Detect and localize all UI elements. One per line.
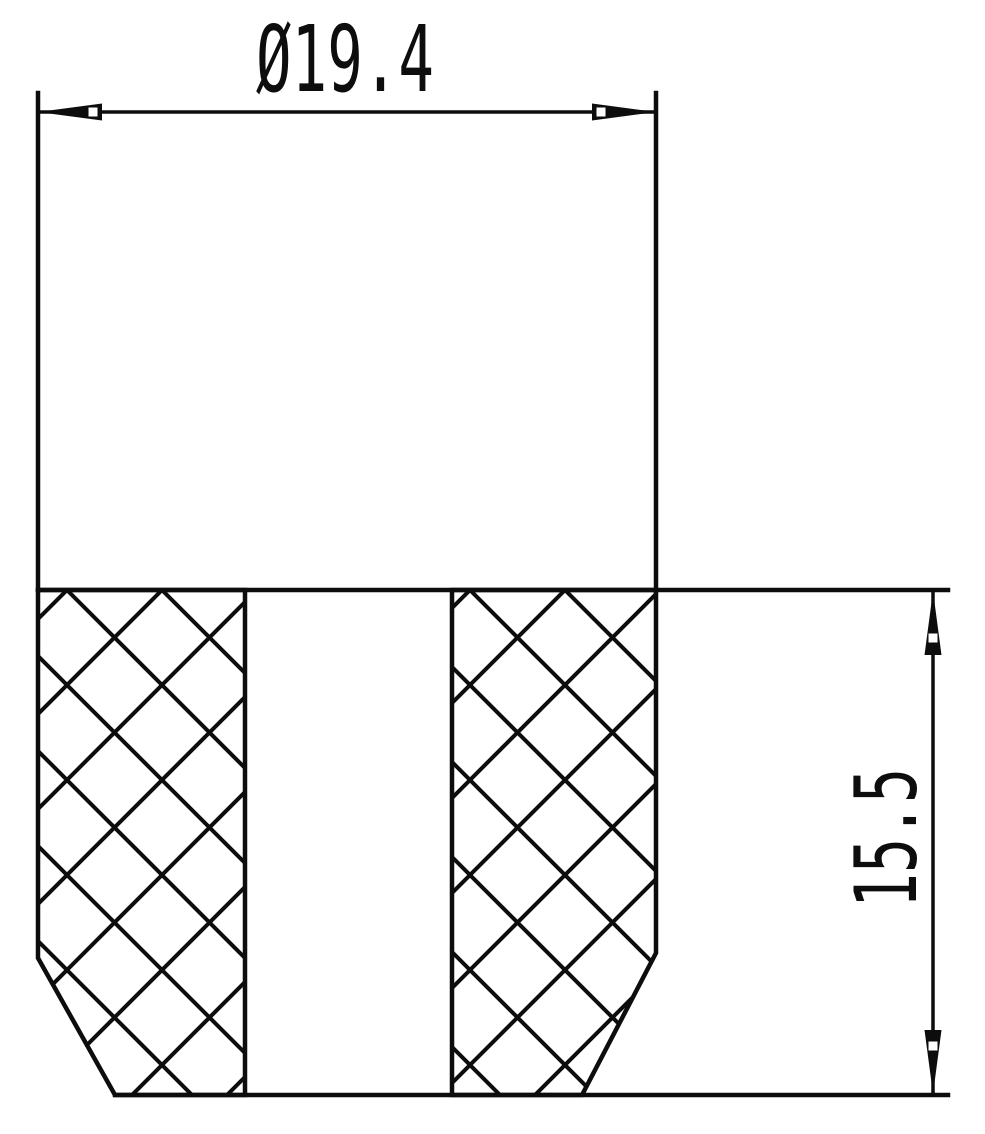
- diameter-dimension-label: Ø19.4: [256, 6, 434, 113]
- dimension-arrow-down-icon: [925, 1030, 942, 1094]
- diameter-dimension: Ø19.4: [38, 6, 656, 121]
- arrow-notch: [597, 108, 606, 117]
- right-hatch-region: [452, 590, 656, 1095]
- arrow-notch: [929, 634, 938, 643]
- technical-drawing-canvas: Ø19.4 15.5: [0, 0, 985, 1134]
- arrow-notch: [929, 1042, 938, 1051]
- dimension-arrow-up-icon: [925, 591, 942, 655]
- height-dimension-label: 15.5: [837, 768, 937, 908]
- arrow-notch: [89, 108, 98, 117]
- height-dimension: 15.5: [837, 591, 942, 1094]
- drawing-root-group: Ø19.4 15.5: [38, 6, 948, 1095]
- technical-drawing: Ø19.4 15.5: [0, 0, 985, 1134]
- left-hatch-region: [38, 590, 245, 1095]
